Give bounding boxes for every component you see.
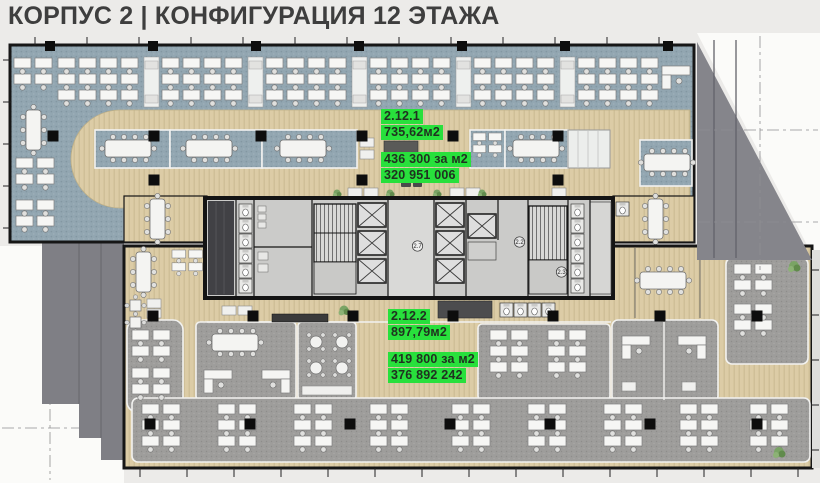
lower-wing-desks — [142, 404, 788, 452]
floorplan-slide: КОРПУС 2 | КОНФИГУРАЦИЯ 12 ЭТАЖА — [0, 0, 820, 483]
floor-plan-drawing: 2.7 2.2 2.3 — [0, 0, 820, 483]
room-tag: 2.7 — [413, 244, 422, 250]
unit-total-price: 376 892 242 — [388, 368, 466, 383]
service-shaft — [208, 201, 234, 295]
room-tag: 2.3 — [557, 270, 566, 276]
elevator-bank-west — [358, 203, 386, 283]
unit-label-2-12-1: 2.12.1 735,62м2 436 300 за м2 320 951 00… — [381, 109, 471, 184]
unit-area: 735,62м2 — [381, 125, 443, 140]
unit-label-2-12-2: 2.12.2 897,79м2 419 800 за м2 376 892 24… — [388, 309, 478, 384]
room-tag: 2.2 — [515, 240, 524, 246]
stairwell-west — [314, 204, 356, 294]
unit-id: 2.12.2 — [388, 309, 430, 324]
unit-total-price: 320 951 006 — [381, 168, 459, 183]
unit-price-per-m2: 419 800 за м2 — [388, 352, 478, 367]
reception-counter — [272, 314, 328, 322]
building-core: 2.7 2.2 2.3 — [205, 198, 613, 298]
unit-area: 897,79м2 — [388, 325, 450, 340]
unit-id: 2.12.1 — [381, 109, 423, 124]
stairwell-east — [529, 206, 567, 294]
unit-price-per-m2: 436 300 за м2 — [381, 152, 471, 167]
